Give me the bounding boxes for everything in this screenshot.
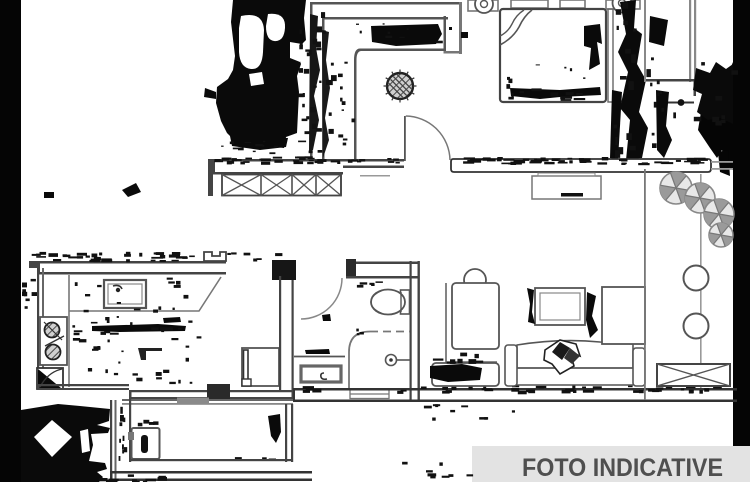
svg-text:FOTO INDICATIVE: FOTO INDICATIVE [522,454,723,482]
